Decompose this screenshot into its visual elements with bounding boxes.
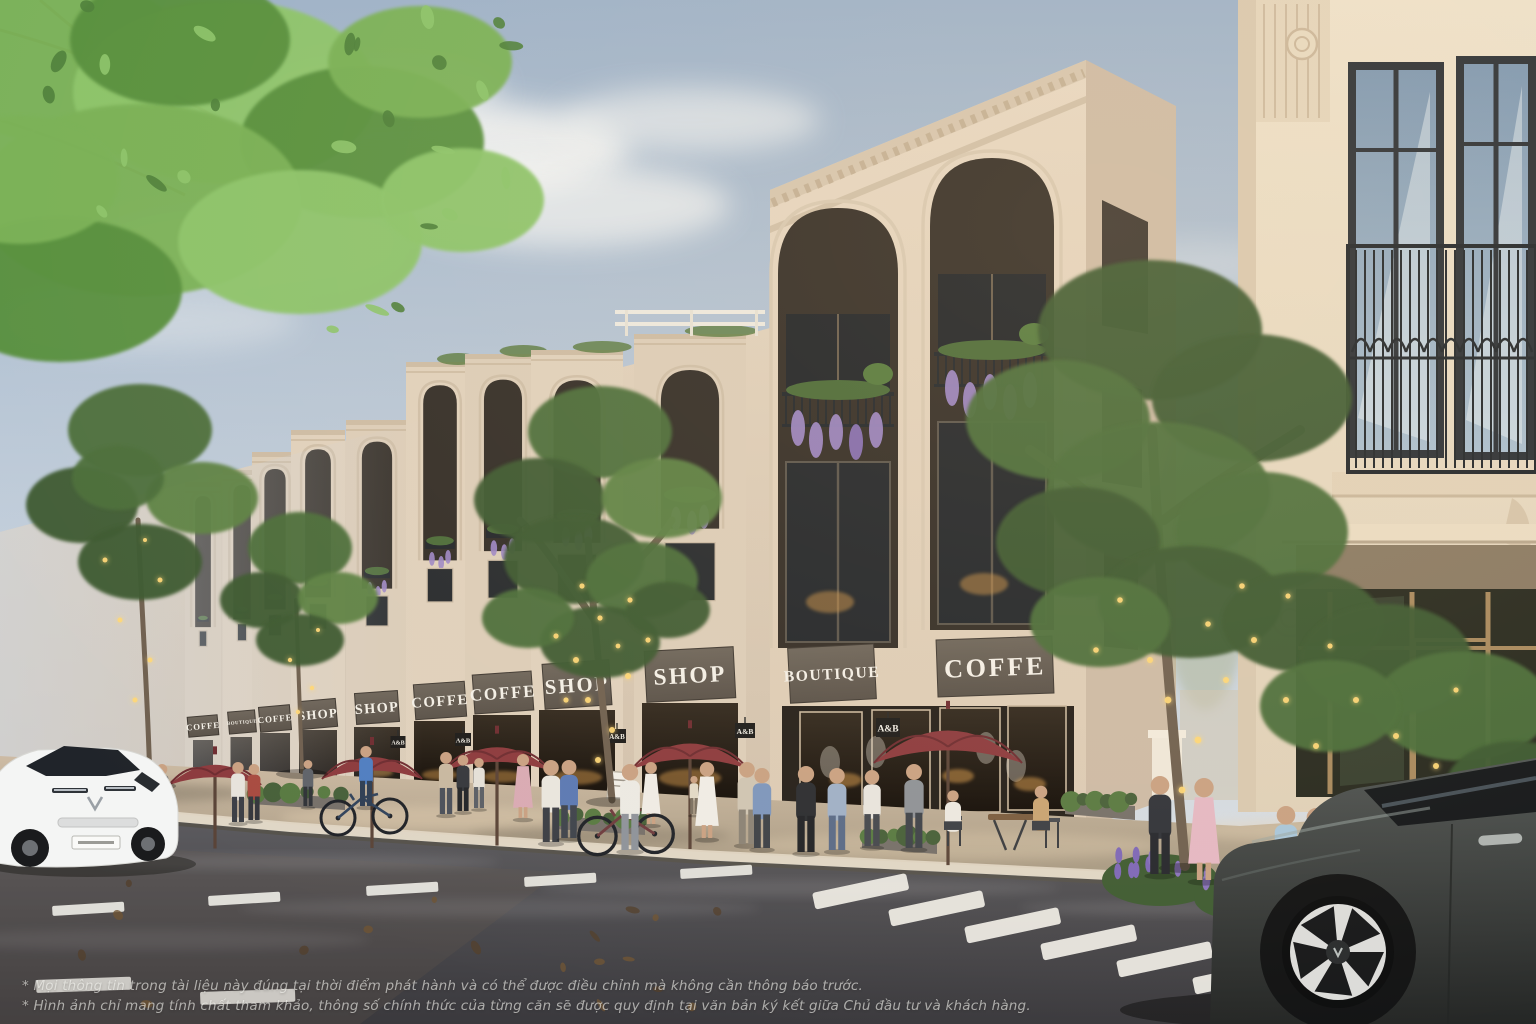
disclaimer-line1: * Mọi thông tin trong tài liệu này đúng … [22,976,1031,996]
foreground-foliage [0,0,1536,1024]
disclaimer-line2: * Hình ảnh chỉ mang tính chất tham khảo,… [22,996,1031,1016]
scene-architectural-render: COFFEBOUTIQUECOFFESHOPSHOPCOFFECOFFESHOP… [0,0,1536,1024]
disclaimer: * Mọi thông tin trong tài liệu này đúng … [22,976,1031,1017]
street-render-canvas: COFFEBOUTIQUECOFFESHOPSHOPCOFFECOFFESHOP… [0,0,1536,1024]
